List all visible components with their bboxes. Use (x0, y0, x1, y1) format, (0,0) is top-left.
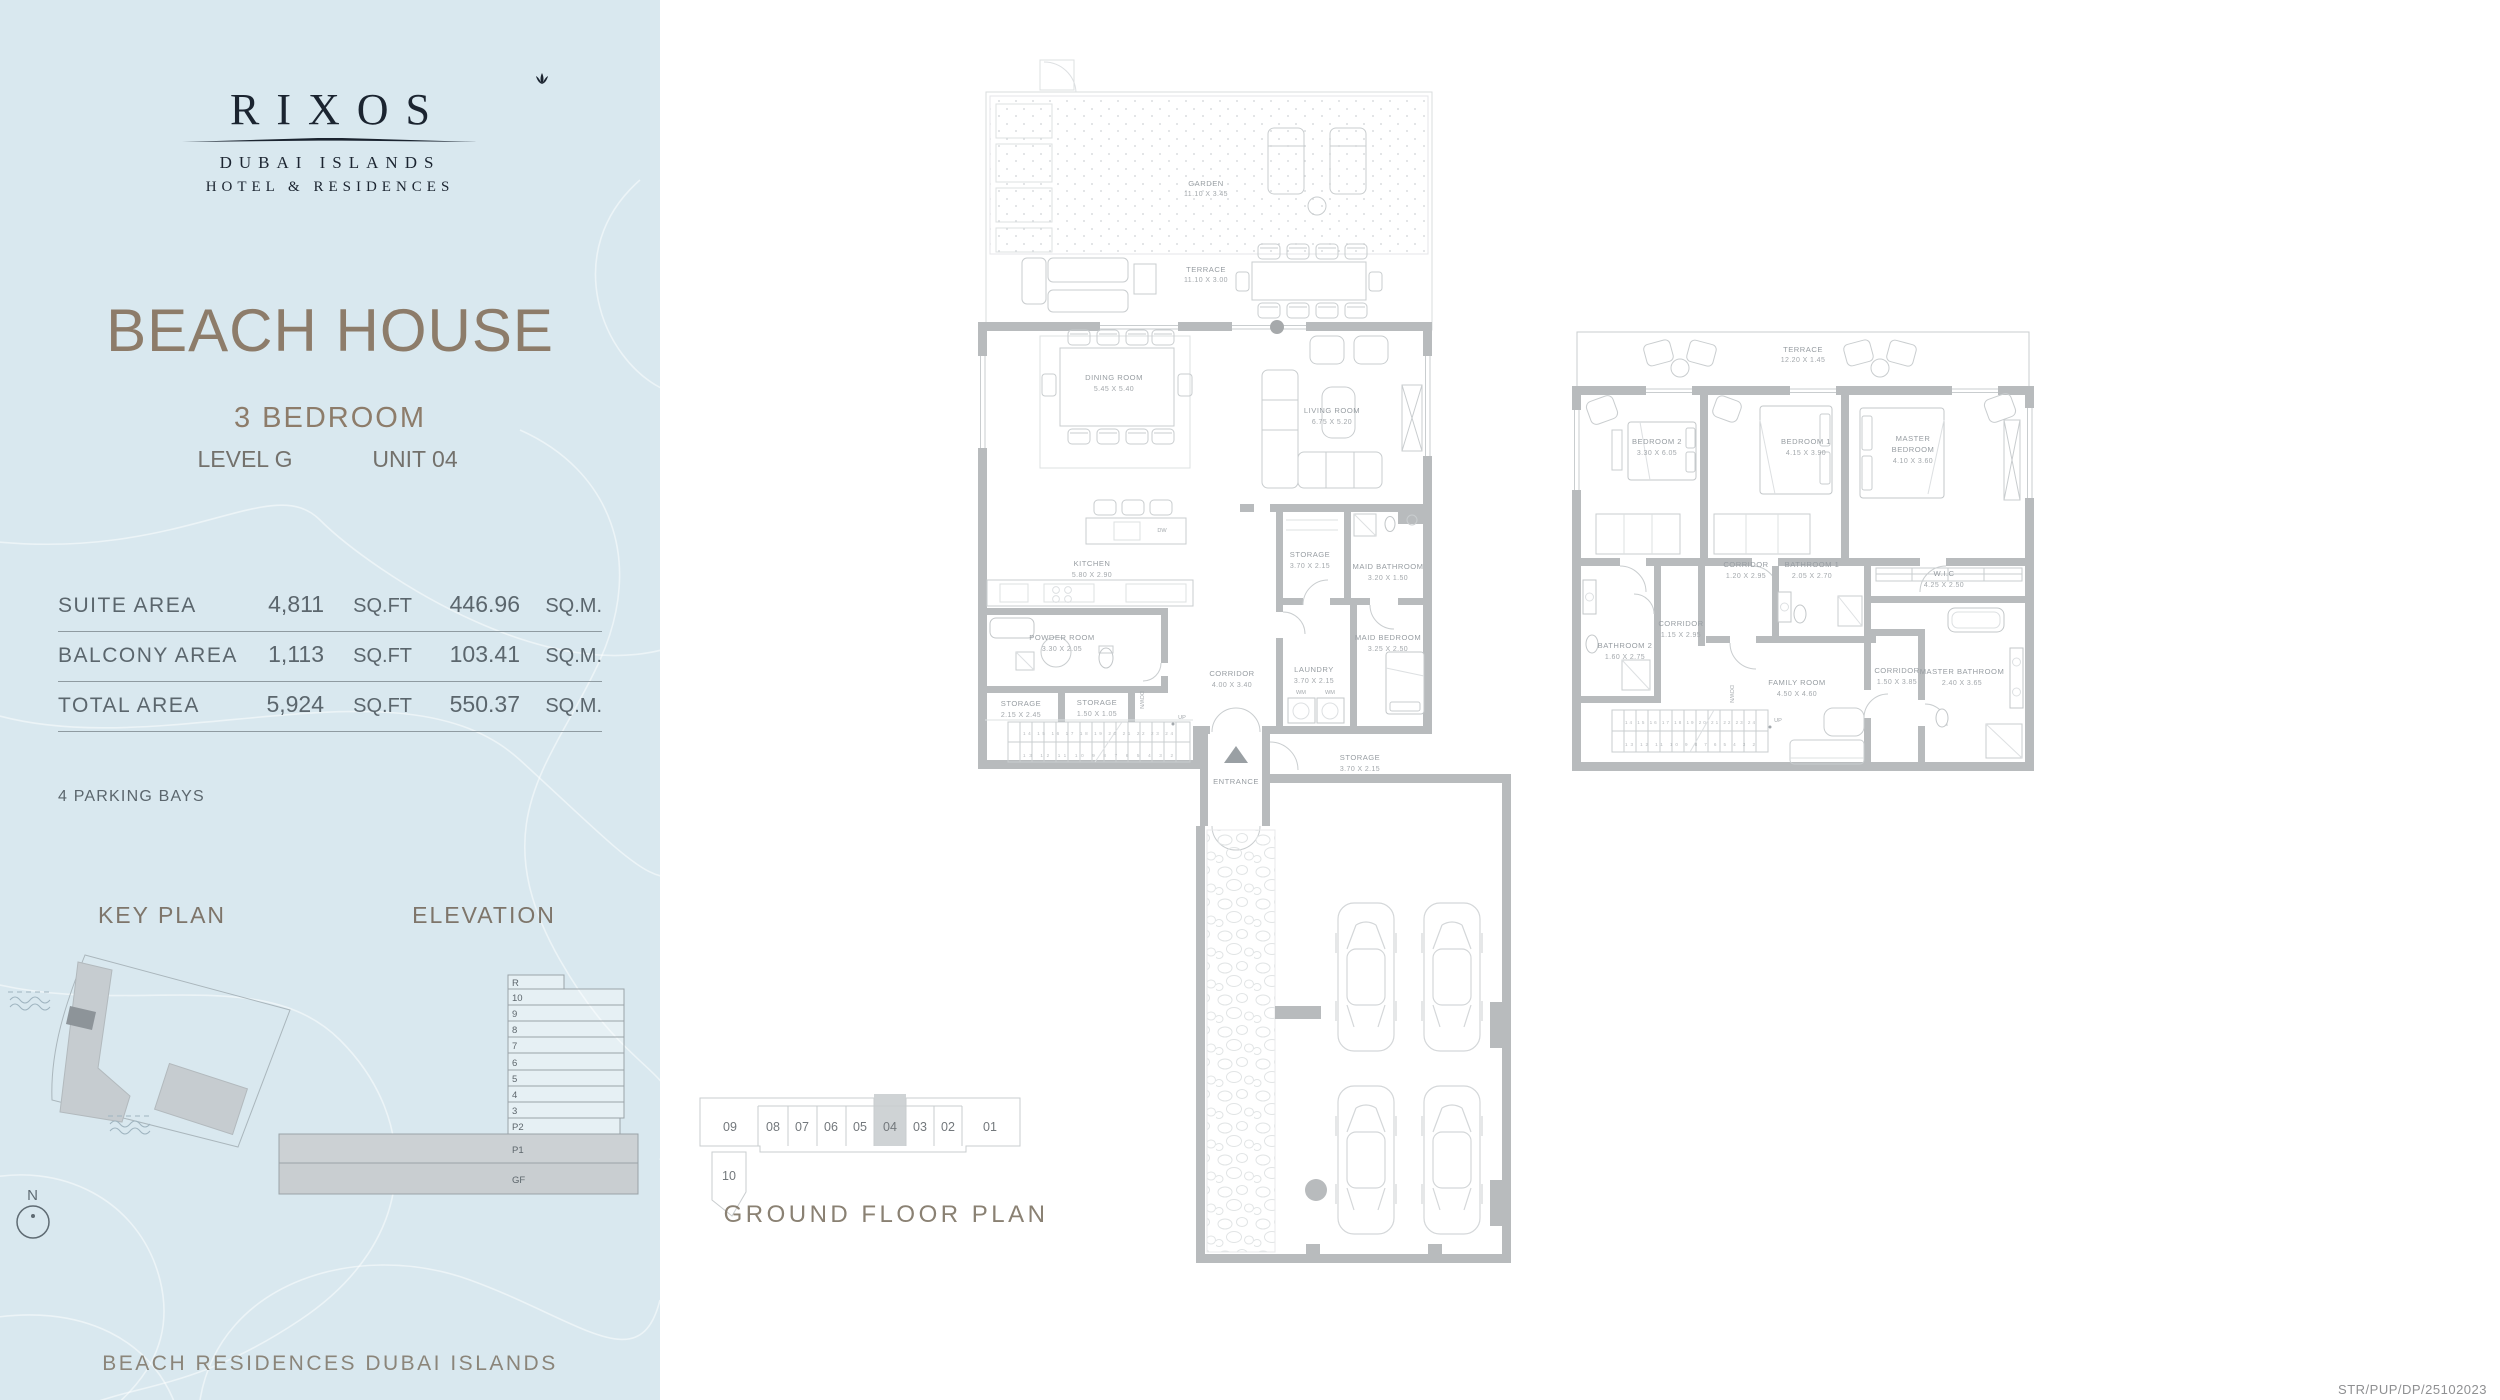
floor-label: 3 (512, 1106, 517, 1117)
room-label: CORRIDOR (1658, 619, 1703, 628)
floor-label: 4 (512, 1090, 517, 1101)
room-dims: 1.20 X 2.95 (1726, 573, 1766, 580)
unit-cell-number: 09 (723, 1120, 737, 1134)
garage-column (1305, 1179, 1327, 1201)
floor-label: 6 (512, 1058, 517, 1069)
area-table: SUITE AREA 4,811 SQ.FT 446.96 SQ.M. BALC… (58, 582, 602, 732)
area-sqm-value: 550.37 (412, 691, 520, 718)
bedroom-count-subtitle: 3 BEDROOM (0, 402, 660, 435)
floor-plan-canvas: GARDEN 11.10 X 3.45 TERRACE 11.10 X 3.00 (660, 0, 2500, 1400)
room-dims: 1.15 X 2.95 (1661, 632, 1701, 639)
area-sqm-unit: SQ.M. (520, 695, 602, 718)
unit-cell-number: 08 (766, 1120, 780, 1134)
entrance-arrow-icon (1224, 746, 1248, 763)
car-symbol (1422, 1086, 1482, 1234)
room-label: LIVING ROOM (1304, 406, 1360, 415)
area-sqft-unit: SQ.FT (324, 595, 412, 618)
room-label: POWDER ROOM (1029, 633, 1094, 642)
elevation-heading: ELEVATION (404, 902, 564, 929)
area-sqft-value: 4,811 (246, 591, 324, 618)
room-label: BATHROOM 1 (1785, 560, 1840, 569)
room-dims: 6.75 X 5.20 (1312, 419, 1352, 426)
floor-label: 9 (512, 1009, 517, 1020)
logo-flourish-line (180, 136, 480, 144)
kitchen-island (1086, 500, 1186, 544)
key-plan-diagram: N (8, 955, 290, 1238)
tv-unit (1402, 385, 1422, 451)
armchair (1983, 392, 2018, 424)
room-dims: 3.25 X 2.50 (1368, 646, 1408, 653)
unit-cell-number: 04 (883, 1120, 897, 1134)
info-sidebar: N R 10 9 8 7 6 (0, 0, 660, 1400)
left-plan-outdoor: GARDEN 11.10 X 3.45 TERRACE 11.10 X 3.00 (986, 60, 1432, 330)
room-label: FAMILY ROOM (1768, 678, 1826, 687)
room-label: STORAGE (1077, 698, 1118, 707)
stairs-up-label: UP (1774, 718, 1782, 724)
stairs-up-label: UP (1178, 715, 1186, 721)
pebble-path (1207, 830, 1275, 1252)
door-swing-arc (1634, 594, 1654, 614)
car-symbol (1336, 1086, 1396, 1234)
car-symbol (1422, 903, 1482, 1051)
area-sqm-unit: SQ.M. (520, 595, 602, 618)
stairs-down-label: DOWN (1728, 685, 1734, 703)
bench (1612, 430, 1622, 470)
structural-column (1270, 320, 1284, 334)
room-label: TERRACE (1186, 265, 1226, 274)
maid-bedroom-bed (1386, 652, 1424, 714)
door-swing-arc (1303, 580, 1328, 605)
door-swing-arc (1620, 566, 1646, 592)
room-label: TERRACE (1783, 345, 1823, 354)
floor-label: 10 (512, 993, 523, 1004)
room-label: BEDROOM (1892, 445, 1935, 454)
area-row-label: SUITE AREA (58, 594, 246, 618)
room-dims: 3.70 X 2.15 (1340, 766, 1380, 773)
level-label: LEVEL G (155, 446, 335, 473)
ground-floor-plan-caption: GROUND FLOOR PLAN (724, 1201, 1049, 1228)
room-label: STORAGE (1290, 550, 1331, 559)
area-sqm-unit: SQ.M. (520, 645, 602, 668)
logo-subtitle-location: DUBAI ISLANDS (0, 153, 660, 173)
room-label: MAID BATHROOM (1353, 562, 1424, 571)
key-plan-annex-building (155, 1064, 248, 1135)
room-dims: 1.60 X 2.75 (1605, 654, 1645, 661)
north-compass-icon: N (17, 1187, 49, 1238)
key-plan-heading: KEY PLAN (82, 902, 242, 929)
unit-cell-number: 10 (722, 1169, 736, 1183)
armchair (1585, 394, 1620, 426)
stairs-down-label: DOWN (1138, 691, 1144, 709)
dishwasher-label: DW (1157, 528, 1167, 534)
floor-label: 7 (512, 1041, 517, 1052)
unit-cell-number: 03 (913, 1120, 927, 1134)
garage (1196, 774, 1511, 1263)
room-label: BATHROOM 2 (1598, 641, 1653, 650)
rear-storage-room: STORAGE 3.70 X 2.15 (1270, 742, 1511, 783)
washer-label: WM (1296, 690, 1306, 696)
key-plan-building (60, 962, 130, 1122)
left-plan-labels: DINING ROOM 5.45 X 5.40 LIVING ROOM 6.75… (1001, 373, 1424, 719)
room-label: STORAGE (1340, 753, 1381, 762)
brand-wordmark: RIXOS (213, 86, 447, 134)
unit-cell-number: 07 (795, 1120, 809, 1134)
unit-cell-number: 05 (853, 1120, 867, 1134)
rixos-logo: RIXOS DUBAI ISLANDS HOTEL & RESIDENCES (0, 86, 660, 196)
reference-code: STR/PUP/DP/25102023 (2338, 1382, 2487, 1397)
room-dims: 4.50 X 4.60 (1777, 691, 1817, 698)
room-dims: 3.70 X 2.15 (1290, 563, 1330, 570)
room-dims: 1.50 X 1.05 (1077, 711, 1117, 718)
floor-label: 8 (512, 1025, 517, 1036)
unit-cell-number: 02 (941, 1120, 955, 1134)
powder-room-fixtures (990, 618, 1113, 670)
room-dims: 12.20 X 1.45 (1781, 357, 1826, 364)
footer-project-name: BEACH RESIDENCES DUBAI ISLANDS (0, 1352, 660, 1376)
stair-numbers: 14 15 16 17 18 19 20 21 22 23 24 (1625, 720, 1755, 725)
table-row-suite-area: SUITE AREA 4,811 SQ.FT 446.96 SQ.M. (58, 582, 602, 632)
door-swing-arc (1270, 742, 1298, 770)
armchair (1711, 394, 1743, 424)
water-symbol-icon (8, 992, 52, 1010)
room-label: W.I.C (1933, 569, 1954, 578)
logo-subtitle-type: HOTEL & RESIDENCES (0, 179, 660, 196)
room-label: MASTER BATHROOM (1920, 667, 2005, 676)
ottoman (1824, 708, 1864, 736)
entrance-vestibule: ENTRANCE (1200, 708, 1270, 850)
kitchen-counter (987, 580, 1193, 606)
bathroom1-fixtures (1778, 592, 1862, 626)
door-swing-arc (1212, 708, 1260, 732)
door-swing-arc (1143, 663, 1161, 681)
elevation-diagram: R 10 9 8 7 6 5 4 3 P2 P1 GF (279, 975, 638, 1194)
page-title: BEACH HOUSE (0, 296, 660, 365)
floor-label: P1 (512, 1145, 524, 1156)
table-row-total-area: TOTAL AREA 5,924 SQ.FT 550.37 SQ.M. (58, 682, 602, 732)
room-label: LAUNDRY (1294, 665, 1334, 674)
room-dims: 4.15 X 3.90 (1786, 450, 1826, 457)
room-dims: 5.80 X 2.90 (1072, 572, 1112, 579)
door-swing-arc (1044, 62, 1076, 92)
floor-label: R (512, 978, 519, 989)
room-dims: 3.30 X 2.05 (1042, 646, 1082, 653)
stair-numbers: 13 12 11 10 9 8 7 6 5 4 3 2 (1023, 753, 1173, 758)
floor-label: 5 (512, 1074, 517, 1085)
dining-rug (1040, 336, 1190, 468)
storage-shelves (1286, 520, 1338, 530)
armchair (1354, 336, 1388, 364)
room-label: CORRIDOR (1874, 666, 1919, 675)
room-dims: 2.05 X 2.70 (1792, 573, 1832, 580)
right-plan: TERRACE 12.20 X 1.45 (1572, 332, 2034, 771)
room-dims: 2.40 X 3.65 (1942, 680, 1982, 687)
room-label: CORRIDOR (1209, 669, 1254, 678)
room-label: MASTER (1896, 434, 1931, 443)
washer-label: WM (1325, 690, 1335, 696)
armchair (1310, 336, 1344, 364)
room-label: CORRIDOR (1723, 560, 1768, 569)
area-sqft-value: 5,924 (246, 691, 324, 718)
floor-label: P2 (512, 1122, 524, 1133)
family-room-sofa (1790, 740, 1864, 764)
unit-cell-number: 06 (824, 1120, 838, 1134)
door-swing-arc (1370, 605, 1394, 629)
room-dims: 3.30 X 6.05 (1637, 450, 1677, 457)
room-label: GARDEN (1188, 179, 1224, 188)
wardrobe (1714, 514, 1810, 554)
room-label: BEDROOM 1 (1781, 437, 1831, 446)
room-dims: 5.45 X 5.40 (1094, 386, 1134, 393)
laundry-machines (1288, 698, 1344, 723)
unit-cell-number: 01 (983, 1120, 997, 1134)
room-label: STORAGE (1001, 699, 1042, 708)
room-dims: 4.10 X 3.60 (1893, 458, 1933, 465)
room-label: KITCHEN (1074, 559, 1111, 568)
room-dims: 11.10 X 3.45 (1184, 191, 1228, 198)
area-sqft-unit: SQ.FT (324, 695, 412, 718)
unit-label: UNIT 04 (325, 446, 505, 473)
room-dims: 2.15 X 2.45 (1001, 712, 1041, 719)
area-sqft-unit: SQ.FT (324, 645, 412, 668)
room-dims: 3.70 X 2.15 (1294, 678, 1334, 685)
stair-numbers: 14 15 16 17 18 19 20 21 22 23 24 (1023, 731, 1173, 736)
car-symbol (1336, 903, 1396, 1051)
left-plan-walls (978, 320, 1432, 769)
floor-label: GF (512, 1175, 525, 1186)
parking-note: 4 PARKING BAYS (58, 788, 205, 806)
compass-north-label: N (27, 1187, 39, 1204)
room-dims: 1.50 X 3.85 (1877, 679, 1917, 686)
room-dims: 3.20 X 1.50 (1368, 575, 1408, 582)
room-dims: 4.00 X 3.40 (1212, 682, 1252, 689)
room-dims: 11.10 X 3.00 (1184, 277, 1228, 284)
door-swing-arc (1730, 643, 1756, 669)
area-row-label: TOTAL AREA (58, 694, 246, 718)
area-row-label: BALCONY AREA (58, 644, 246, 668)
bathroom2-fixtures (1583, 580, 1650, 690)
door-swing-arc (1283, 612, 1305, 634)
room-label: DINING ROOM (1085, 373, 1143, 382)
maid-bathroom-fixtures (1354, 514, 1417, 536)
room-dims: 4.25 X 2.50 (1924, 582, 1964, 589)
area-sqm-value: 103.41 (412, 641, 520, 668)
area-sqft-value: 1,113 (246, 641, 324, 668)
room-label: BEDROOM 2 (1632, 437, 1682, 446)
area-sqm-value: 446.96 (412, 591, 520, 618)
tulip-icon (531, 72, 553, 90)
stair-numbers: 13 12 11 10 9 8 7 6 5 4 3 2 (1625, 742, 1755, 747)
room-label: MAID BEDROOM (1355, 633, 1421, 642)
room-label: ENTRANCE (1213, 777, 1259, 786)
ground-floor-key-strip: 09 08 07 06 05 04 03 02 01 10 GROUND FLO… (700, 1094, 1048, 1228)
wardrobe (1596, 514, 1680, 554)
left-plan-furniture: DW 14 15 16 17 18 19 20 21 22 23 24 13 1… (987, 330, 1424, 762)
wardrobe (2004, 420, 2020, 500)
table-row-balcony-area: BALCONY AREA 1,113 SQ.FT 103.41 SQ.M. (58, 632, 602, 682)
